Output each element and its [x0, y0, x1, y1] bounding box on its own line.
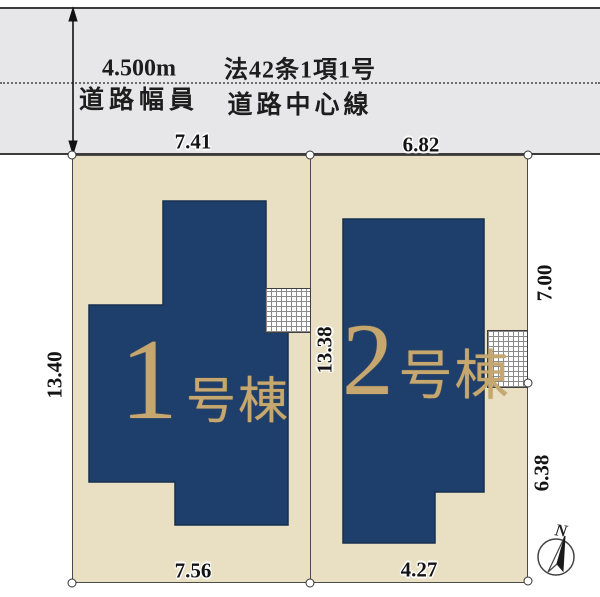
- building-1-porch-hatch: [265, 288, 311, 333]
- vertex-marker: [306, 579, 315, 588]
- dim-lot2-right-upper: 7.00: [533, 265, 558, 302]
- building-2-number: 2: [342, 322, 394, 399]
- dim-lot2-right-lower: 6.38: [530, 455, 555, 492]
- building-2-label: 2 号棟: [342, 322, 511, 403]
- dim-lot1-left: 13.40: [43, 351, 68, 398]
- dim-lot2-top: 6.82: [403, 133, 440, 158]
- dim-lot2-bottom: 4.27: [401, 558, 438, 583]
- building-1-suffix: 号棟: [186, 376, 290, 426]
- vertex-marker: [524, 379, 533, 388]
- vertex-marker: [306, 151, 315, 160]
- dim-lot1-bottom: 7.56: [175, 559, 212, 584]
- vertex-marker: [524, 151, 533, 160]
- site-plan: 4.500m 法42条1項1号 道路幅員 道路中心線 1 号棟 2 号棟: [0, 0, 600, 597]
- vertex-marker: [68, 151, 77, 160]
- dim-lot1-top: 7.41: [175, 130, 212, 155]
- building-1-number: 1: [120, 337, 178, 424]
- compass-icon: [538, 536, 574, 575]
- road-width-arrow: [69, 8, 77, 154]
- vertex-marker: [68, 579, 77, 588]
- vertex-marker: [524, 577, 533, 586]
- dim-shared-middle: 13.38: [313, 326, 338, 373]
- building-2-suffix: 号棟: [399, 349, 511, 403]
- building-1-label: 1 号棟: [120, 337, 290, 426]
